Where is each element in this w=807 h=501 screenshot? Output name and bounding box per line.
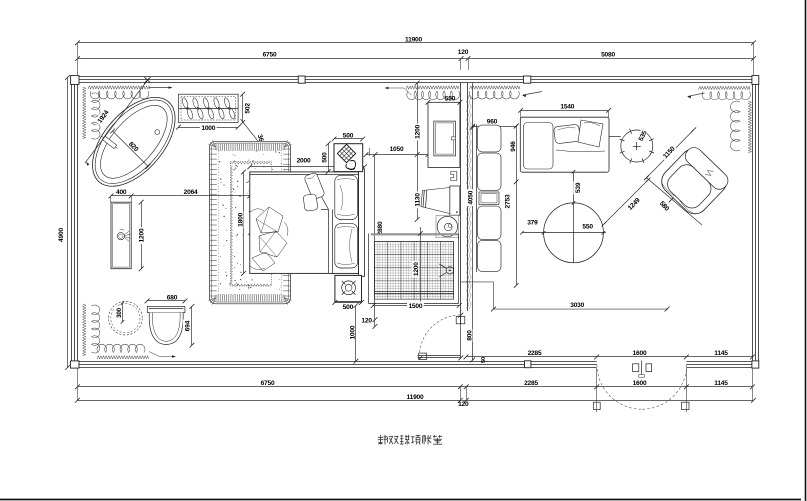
svg-text:1200: 1200 <box>413 262 420 276</box>
svg-text:3030: 3030 <box>570 302 584 309</box>
svg-text:2285: 2285 <box>524 380 538 387</box>
svg-text:1200: 1200 <box>415 124 422 138</box>
svg-text:1540: 1540 <box>560 103 574 110</box>
svg-text:1600: 1600 <box>633 380 647 387</box>
svg-text:502: 502 <box>244 103 251 114</box>
svg-text:1500: 1500 <box>408 303 422 310</box>
svg-text:120: 120 <box>361 318 372 325</box>
svg-text:4900: 4900 <box>58 228 65 242</box>
svg-text:1145: 1145 <box>714 380 728 387</box>
svg-text:550: 550 <box>445 96 456 103</box>
svg-text:2000: 2000 <box>297 158 311 165</box>
svg-text:50: 50 <box>481 357 487 363</box>
svg-text:6750: 6750 <box>263 52 277 59</box>
svg-text:800: 800 <box>467 330 474 341</box>
svg-text:500: 500 <box>343 304 354 311</box>
svg-text:1130: 1130 <box>415 193 422 207</box>
svg-text:680: 680 <box>167 294 178 301</box>
svg-text:11900: 11900 <box>405 36 423 43</box>
svg-text:120: 120 <box>458 49 469 56</box>
svg-text:539: 539 <box>575 182 582 193</box>
svg-text:500: 500 <box>321 152 328 163</box>
svg-text:1200: 1200 <box>139 228 146 242</box>
svg-text:1600: 1600 <box>633 350 647 357</box>
svg-text:5080: 5080 <box>601 52 615 59</box>
svg-text:300: 300 <box>116 307 123 317</box>
svg-text:400: 400 <box>116 189 127 196</box>
svg-text:4050: 4050 <box>467 190 474 204</box>
svg-text:1800: 1800 <box>238 212 245 226</box>
svg-text:2285: 2285 <box>528 350 542 357</box>
svg-text:1000: 1000 <box>350 325 357 339</box>
svg-text:946: 946 <box>510 141 517 152</box>
svg-text:379: 379 <box>527 220 538 227</box>
svg-text:11900: 11900 <box>407 394 425 401</box>
svg-text:6750: 6750 <box>261 380 275 387</box>
svg-text:500: 500 <box>343 132 354 139</box>
svg-text:120: 120 <box>458 401 469 408</box>
svg-text:2753: 2753 <box>504 194 511 208</box>
svg-text:550: 550 <box>582 224 593 231</box>
svg-text:1000: 1000 <box>201 125 215 132</box>
svg-text:694: 694 <box>184 320 191 331</box>
svg-text:1145: 1145 <box>714 350 728 357</box>
svg-text:960: 960 <box>487 119 498 126</box>
svg-text:1050: 1050 <box>390 146 404 153</box>
svg-text:2064: 2064 <box>184 189 198 196</box>
